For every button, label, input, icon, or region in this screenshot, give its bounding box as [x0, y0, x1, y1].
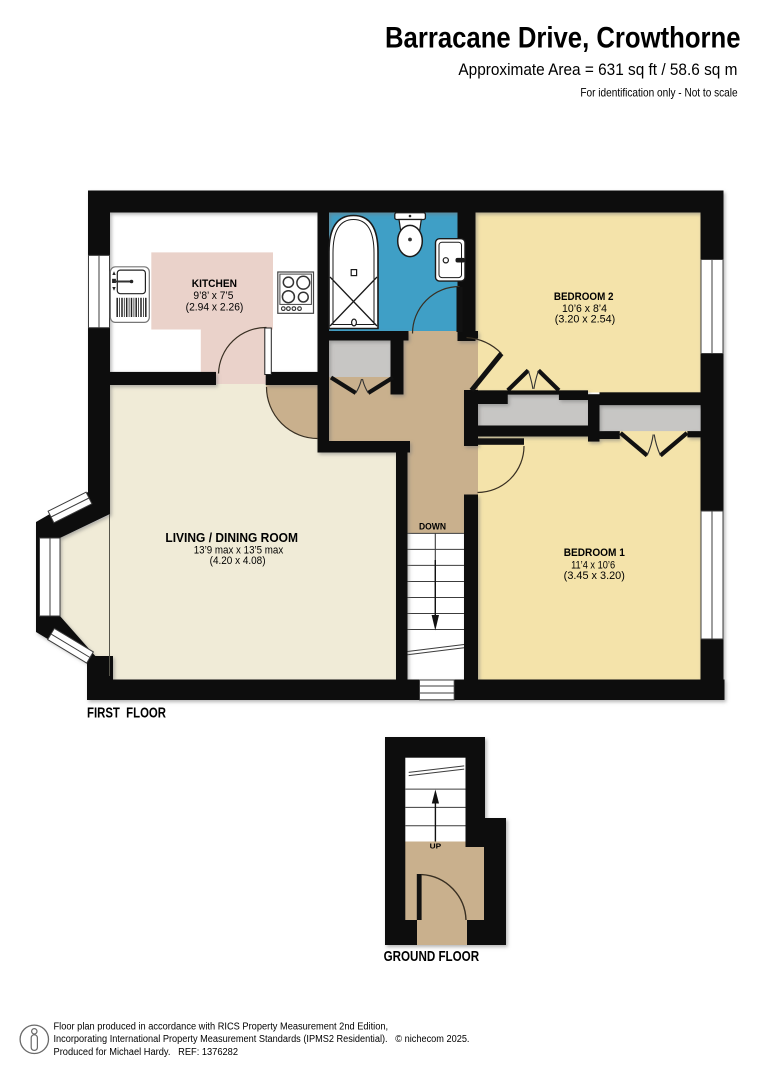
svg-text:(3.45 x 3.20): (3.45 x 3.20) [564, 570, 625, 582]
svg-text:FIRST FLOOR: FIRST FLOOR [87, 706, 166, 722]
svg-text:Incorporating International Pr: Incorporating International Property Mea… [54, 1034, 470, 1045]
svg-text:UP: UP [430, 841, 442, 850]
svg-text:Produced for Michael Hardy.: Produced for Michael Hardy. REF: 1376282 [54, 1047, 239, 1058]
svg-text:For identification only - Not: For identification only - Not to scale [580, 86, 737, 100]
svg-text:LIVING / DINING ROOM: LIVING / DINING ROOM [165, 530, 298, 545]
svg-text:KITCHEN: KITCHEN [192, 278, 237, 290]
svg-text:BEDROOM 1: BEDROOM 1 [564, 547, 625, 559]
svg-text:Approximate Area = 631 sq ft /: Approximate Area = 631 sq ft / 58.6 sq m [458, 60, 737, 79]
svg-text:(4.20 x 4.08): (4.20 x 4.08) [210, 555, 266, 567]
svg-text:(3.20 x 2.54): (3.20 x 2.54) [555, 314, 616, 326]
svg-text:BEDROOM 2: BEDROOM 2 [554, 291, 614, 303]
svg-text:Floor plan produced in accorda: Floor plan produced in accordance with R… [54, 1022, 389, 1033]
svg-text:9’8’ x 7’5: 9’8’ x 7’5 [193, 290, 233, 302]
svg-text:Barracane Drive, Crowthorne: Barracane Drive, Crowthorne [385, 22, 741, 55]
svg-text:(2.94 x 2.26): (2.94 x 2.26) [186, 301, 244, 313]
svg-text:GROUND FLOOR: GROUND FLOOR [384, 949, 480, 965]
svg-text:DOWN: DOWN [419, 522, 446, 532]
